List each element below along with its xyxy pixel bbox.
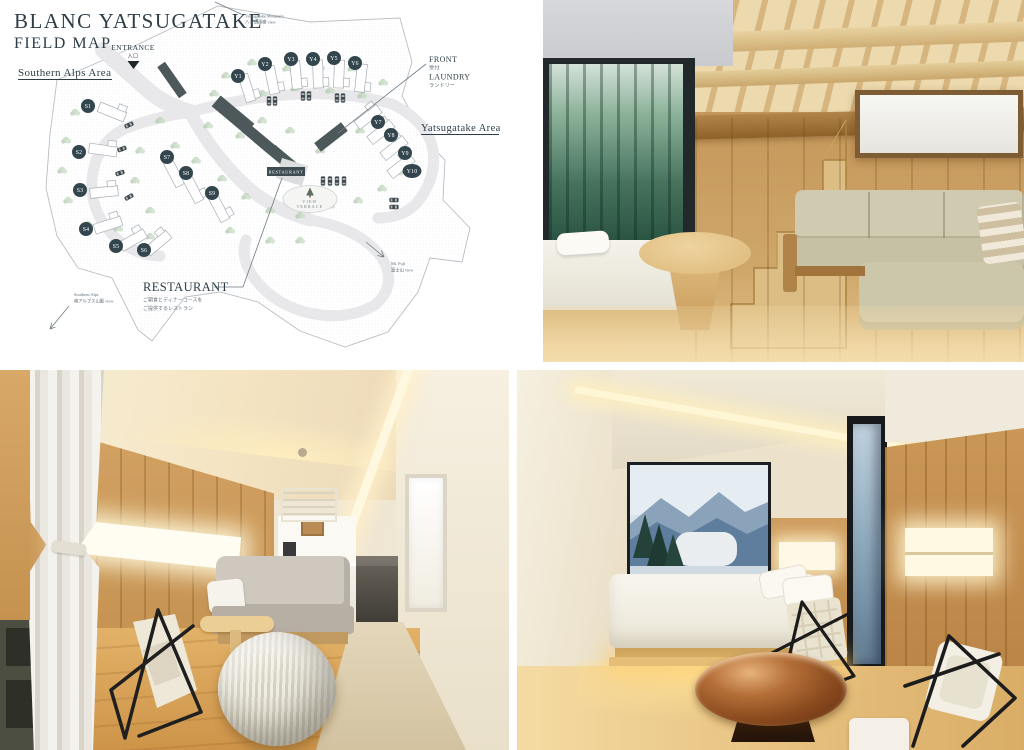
kitchen-shelf — [301, 520, 324, 536]
wire-frame-chair — [903, 628, 1024, 750]
svg-text:S7: S7 — [164, 155, 171, 161]
field-map: RESTAURANT VIEW TERRACE — [0, 0, 537, 362]
svg-text:Yatsugatake Mountain: Yatsugatake Mountain — [245, 14, 284, 19]
high-window — [855, 90, 1023, 158]
ceiling-light-icon — [298, 448, 307, 457]
view-note-southern-alps: Southern Alps 南アルプス山脈 view — [74, 292, 114, 305]
bed-pillow — [556, 230, 609, 256]
svg-text:Y1: Y1 — [234, 74, 242, 80]
svg-text:S9: S9 — [209, 191, 216, 197]
svg-text:Y3: Y3 — [287, 57, 295, 63]
svg-text:S8: S8 — [183, 171, 190, 177]
niche-shelf — [905, 552, 993, 555]
svg-text:Y4: Y4 — [309, 57, 317, 63]
cabin-badge-s1: S1 — [81, 99, 95, 113]
cabin-badge-y1: Y1 — [231, 69, 245, 83]
cabin-badge-s7: S7 — [160, 150, 174, 164]
hall-alcove — [356, 556, 398, 624]
wood-panel — [0, 370, 30, 620]
svg-text:南アルプス山脈 view: 南アルプス山脈 view — [74, 298, 114, 305]
round-wood-table — [695, 652, 847, 726]
front-label: FRONT — [429, 55, 457, 64]
curtain — [26, 370, 104, 750]
sofa-seam — [868, 192, 870, 240]
map-title: BLANC YATSUGATAKE — [14, 9, 263, 33]
svg-text:S1: S1 — [85, 104, 92, 110]
sofa-armrest — [783, 234, 797, 292]
wood-stool-top — [639, 232, 751, 274]
cabin-badge-y10: Y10 — [403, 164, 422, 178]
cabin-badge-y4: Y4 — [306, 52, 320, 66]
svg-text:Y9: Y9 — [401, 151, 409, 157]
photo-living-room — [0, 370, 509, 750]
svg-text:S4: S4 — [83, 227, 90, 233]
field-map-svg: RESTAURANT VIEW TERRACE — [0, 0, 537, 362]
area-label-yatsugatake: Yatsugatake Area — [421, 123, 501, 134]
front-label-jp: 受付 — [429, 64, 439, 72]
mountain-window — [627, 462, 771, 592]
restaurant-note-2: ご提供するレストラン — [143, 305, 193, 312]
cabin-badge-s8: S8 — [179, 166, 193, 180]
svg-text:Southern Alps: Southern Alps — [74, 292, 99, 297]
cabin-badge-s4: S4 — [79, 222, 93, 236]
cabin-badge-y3: Y3 — [284, 52, 298, 66]
svg-text:八ヶ岳連峰 view: 八ヶ岳連峰 view — [245, 19, 277, 26]
laundry-label: LAUNDRY — [429, 73, 470, 82]
svg-text:Y8: Y8 — [387, 133, 395, 139]
cabin-badge-s3: S3 — [73, 183, 87, 197]
cabin-badge-y2: Y2 — [258, 57, 272, 71]
svg-text:富士山 view: 富士山 view — [391, 267, 414, 274]
cabin-badge-s6: S6 — [137, 243, 151, 257]
svg-text:Y5: Y5 — [330, 56, 338, 62]
map-subtitle: FIELD MAP — [14, 35, 112, 52]
cabin-badge-s9: S9 — [205, 186, 219, 200]
cabin-badge-y5: Y5 — [327, 51, 341, 65]
svg-text:S2: S2 — [76, 150, 83, 156]
view-terrace-label-2: TERRACE — [297, 204, 324, 209]
entrance-label-jp: 入口 — [128, 54, 139, 60]
striped-pillow — [976, 201, 1024, 265]
knit-pouf — [218, 632, 336, 746]
svg-text:S6: S6 — [141, 248, 148, 254]
cabin-badge-y6: Y6 — [348, 56, 362, 70]
wood-floor — [543, 306, 1024, 362]
svg-text:Y2: Y2 — [261, 62, 269, 68]
svg-text:Mt. Fuji: Mt. Fuji — [391, 261, 406, 266]
dusk-mountain-view — [627, 462, 771, 592]
photo-bedroom — [517, 370, 1024, 750]
front-laundry-label: FRONT 受付 LAUNDRY ランドリー — [429, 55, 470, 89]
restaurant-label: RESTAURANT — [143, 280, 229, 294]
entrance-label: ENTRANCE — [111, 43, 155, 52]
svg-text:Y7: Y7 — [374, 120, 382, 126]
sofa-seam — [943, 192, 945, 240]
svg-text:S3: S3 — [77, 188, 84, 194]
sofa-base — [795, 266, 865, 276]
svg-text:Y10: Y10 — [407, 169, 418, 175]
view-terrace: VIEW TERRACE — [283, 186, 337, 213]
wire-frame-chair — [95, 592, 230, 744]
area-label-southern-alps: Southern Alps Area — [18, 67, 111, 79]
laundry-label-jp: ランドリー — [429, 82, 455, 89]
photo-collage: RESTAURANT VIEW TERRACE — [0, 0, 1024, 750]
cabin-badge-s5: S5 — [109, 239, 123, 253]
photo-loft-room — [543, 0, 1024, 362]
hall-window — [405, 474, 447, 612]
loft-railing — [281, 488, 337, 522]
svg-text:S5: S5 — [113, 244, 120, 250]
cabin-badge-s2: S2 — [72, 145, 86, 159]
cabin-badge-y9: Y9 — [398, 146, 412, 160]
white-wall — [543, 0, 733, 66]
restaurant-note-1: ご朝食とディナーコースを — [143, 297, 202, 304]
svg-text:Y6: Y6 — [351, 61, 359, 67]
cabin-badge-y8: Y8 — [384, 128, 398, 142]
white-bench — [849, 718, 909, 750]
cabin-badge-y7: Y7 — [371, 115, 385, 129]
restaurant-building-label: RESTAURANT — [269, 170, 304, 175]
